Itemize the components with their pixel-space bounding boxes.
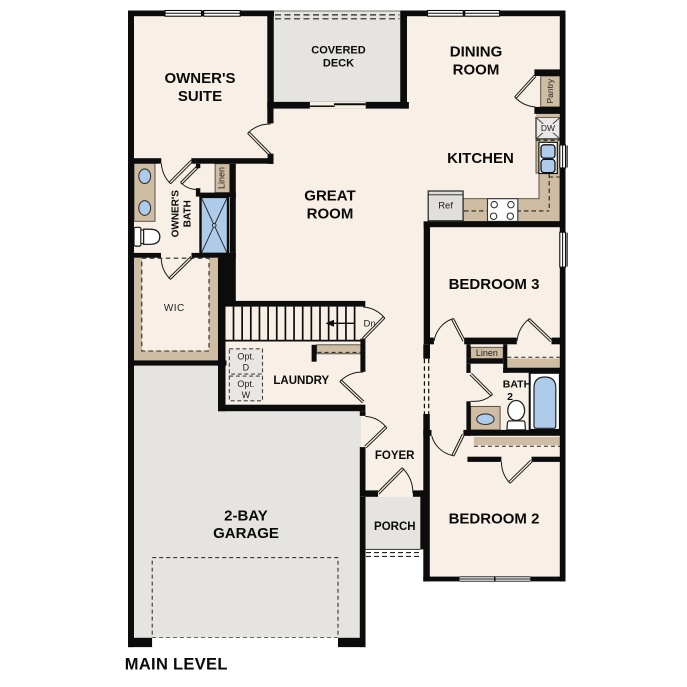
svg-text:DINING: DINING <box>450 43 503 60</box>
svg-text:Linen: Linen <box>476 348 498 358</box>
svg-text:GREAT: GREAT <box>304 188 355 205</box>
svg-text:OWNER'S: OWNER'S <box>171 190 182 238</box>
svg-text:2-BAY: 2-BAY <box>224 507 268 524</box>
svg-text:Opt.: Opt. <box>237 352 254 362</box>
svg-text:Ref: Ref <box>438 201 453 212</box>
svg-text:Pantry: Pantry <box>545 78 555 103</box>
svg-text:COVERED: COVERED <box>311 45 365 57</box>
svg-text:Dn: Dn <box>364 319 376 330</box>
svg-text:BATH: BATH <box>183 200 194 227</box>
svg-text:ROOM: ROOM <box>307 206 354 223</box>
svg-text:OWNER'S: OWNER'S <box>164 70 235 87</box>
svg-text:BEDROOM 2: BEDROOM 2 <box>449 510 540 527</box>
svg-text:BATH: BATH <box>503 379 531 391</box>
svg-text:Linen: Linen <box>217 167 227 189</box>
svg-text:LAUNDRY: LAUNDRY <box>273 375 329 387</box>
svg-text:W: W <box>242 390 251 400</box>
svg-text:WIC: WIC <box>164 303 185 314</box>
svg-text:2: 2 <box>507 391 513 403</box>
svg-text:D: D <box>243 363 250 373</box>
svg-text:KITCHEN: KITCHEN <box>447 150 514 167</box>
svg-text:PORCH: PORCH <box>374 521 416 533</box>
svg-text:DECK: DECK <box>323 58 354 70</box>
svg-text:GARAGE: GARAGE <box>213 525 279 542</box>
svg-text:Opt.: Opt. <box>237 379 254 389</box>
svg-text:ROOM: ROOM <box>453 62 500 79</box>
svg-text:SUITE: SUITE <box>178 88 222 105</box>
svg-text:DW: DW <box>541 123 555 133</box>
svg-text:FOYER: FOYER <box>375 450 415 462</box>
svg-text:MAIN LEVEL: MAIN LEVEL <box>125 656 228 674</box>
svg-text:BEDROOM 3: BEDROOM 3 <box>449 276 540 293</box>
